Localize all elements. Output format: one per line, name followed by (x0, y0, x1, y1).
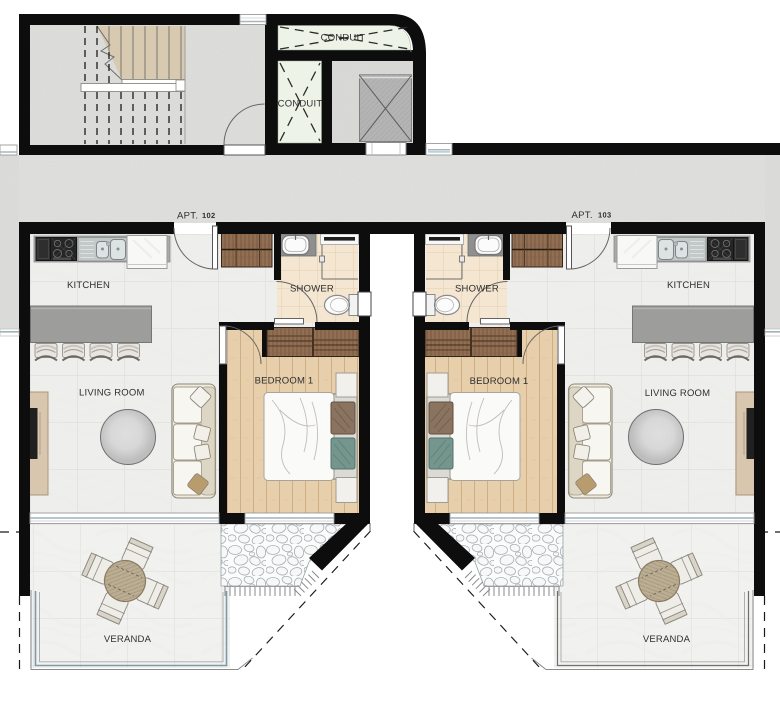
svg-text:APT.: APT. (177, 211, 198, 222)
svg-text:CONDUIT: CONDUIT (278, 99, 323, 110)
svg-text:CONDUIT: CONDUIT (321, 33, 366, 44)
svg-text:SHOWER: SHOWER (290, 284, 334, 295)
svg-text:BEDROOM 1: BEDROOM 1 (255, 376, 314, 387)
svg-text:VERANDA: VERANDA (643, 634, 691, 645)
svg-text:LIVING ROOM: LIVING ROOM (79, 388, 145, 399)
svg-text:APT.: APT. (572, 210, 593, 221)
svg-text:LIVING ROOM: LIVING ROOM (645, 388, 711, 399)
svg-text:SHOWER: SHOWER (455, 284, 499, 295)
svg-text:KITCHEN: KITCHEN (67, 280, 110, 291)
svg-text:102: 102 (202, 211, 215, 220)
svg-text:KITCHEN: KITCHEN (667, 280, 710, 291)
svg-text:VERANDA: VERANDA (104, 634, 152, 645)
svg-text:103: 103 (598, 211, 611, 220)
svg-text:BEDROOM 1: BEDROOM 1 (470, 376, 529, 387)
